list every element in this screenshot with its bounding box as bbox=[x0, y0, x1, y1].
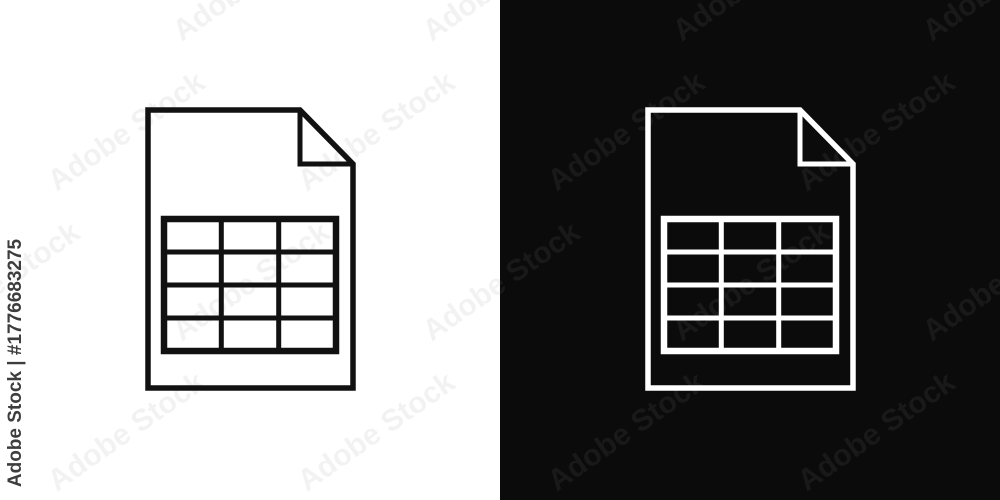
document-page-shape bbox=[648, 110, 853, 388]
stock-image-canvas: Adobe StockAdobe StockAdobe StockAdobe S… bbox=[0, 0, 1000, 500]
spreadsheet-file-icon-outline-black bbox=[0, 0, 500, 500]
document-page-shape bbox=[148, 110, 353, 388]
panel-dark: Adobe StockAdobe StockAdobe StockAdobe S… bbox=[500, 0, 1000, 500]
stock-id-watermark: Adobe Stock | #1776683275 bbox=[5, 233, 27, 493]
panel-light: Adobe StockAdobe StockAdobe StockAdobe S… bbox=[0, 0, 500, 500]
spreadsheet-file-icon-outline-white bbox=[500, 0, 1000, 500]
